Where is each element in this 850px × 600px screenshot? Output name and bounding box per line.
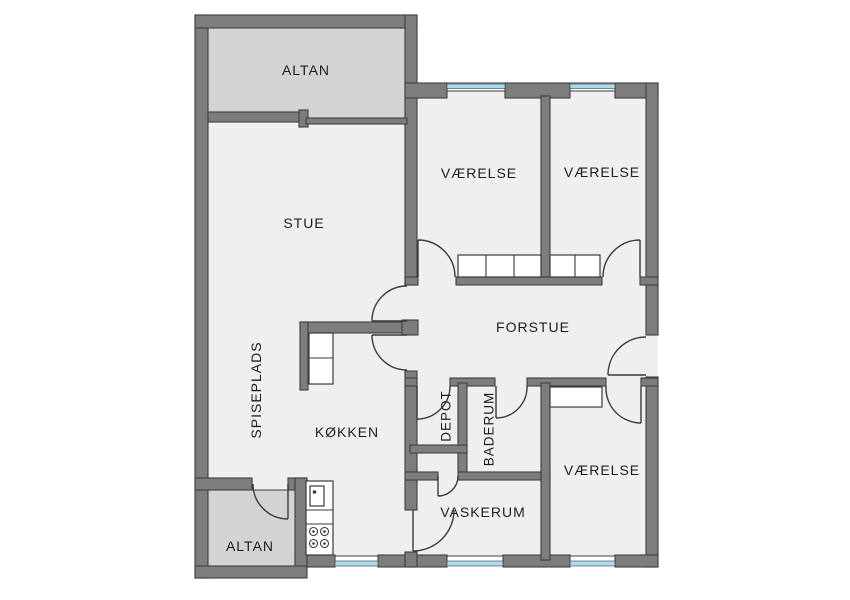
label-vaskerum: VASKERUM [440,504,526,520]
floor-plan-page: ALTAN STUE VÆRELSE VÆRELSE FORSTUE SPISE… [0,0,850,600]
wall-top-right-a [405,83,447,98]
wall-outer-top-left [195,15,417,28]
balcony-bottom-floor [208,490,295,567]
kitchen-counter [306,481,333,555]
floor-plan-svg: ALTAN STUE VÆRELSE VÆRELSE FORSTUE SPISE… [0,0,850,600]
wall-forstue-bottom-d [641,378,658,386]
label-altan-bottom: ALTAN [226,538,274,554]
wall-kitchen-horizontal [300,322,403,333]
wall-spine-bottom [405,552,417,567]
label-altan-top: ALTAN [282,62,330,78]
label-vaerelse-nw: VÆRELSE [441,165,517,181]
wall-forstue-bottom-b [450,378,495,386]
window-top-2 [570,83,615,91]
wall-balcony2-bottom [195,566,307,578]
window-top-1 [447,83,505,91]
kitchen-cabinets [309,333,333,384]
label-koekken: KØKKEN [315,424,379,440]
label-stue: STUE [283,215,324,231]
wall-bottom-d [615,555,658,567]
wall-kitchen-cap [402,320,418,335]
closet-bedroom-ne [550,255,600,277]
closet-bedroom-nw [458,255,541,277]
label-spiseplads: SPISEPLADS [248,341,264,438]
wall-depot-bottom [410,445,467,453]
wall-bedroom-divider [541,96,550,277]
wall-forstue-bottom-c [527,378,606,386]
wall-outer-left [195,15,208,578]
wall-forstue-top-a [405,277,418,285]
wall-spine-mid [405,371,417,510]
wall-balcony2-right [295,478,307,567]
wall-balcony-top-thick [208,112,307,122]
wall-depot-baderum-divider [458,383,467,472]
window-bottom-bedroom [570,556,615,566]
wall-baderum-bottom [458,472,550,480]
wall-niche [405,472,438,480]
window-bottom-kitchen [335,556,378,566]
entrance-opening [646,335,658,377]
kitchen-sink [310,486,324,506]
wall-forstue-bottom-a [405,378,417,386]
label-baderum: BADERUM [482,392,497,467]
wall-kitchen-vertical [300,322,308,390]
window-bottom-vaskerum [447,556,503,566]
sink-faucet [313,490,317,494]
wall-bedroom-se-west [541,383,550,560]
wall-outer-right-upper [646,83,658,335]
label-vaerelse-se: VÆRELSE [564,462,640,478]
label-depot: DEPOT [439,390,454,442]
wall-bottom-c [503,555,570,567]
wall-balcony-top-glass [306,118,407,124]
closet-bedroom-se [550,387,602,407]
wall-forstue-top-b [456,277,602,285]
label-forstue: FORSTUE [496,319,570,335]
label-vaerelse-ne: VÆRELSE [564,164,640,180]
wall-top-right-b [505,83,570,98]
wall-forstue-top-c [640,277,658,285]
wall-spine-top [405,15,417,285]
floors-layer [202,22,658,567]
wall-outer-right-lower [646,377,658,567]
wall-balcony2-top-left [195,478,252,490]
